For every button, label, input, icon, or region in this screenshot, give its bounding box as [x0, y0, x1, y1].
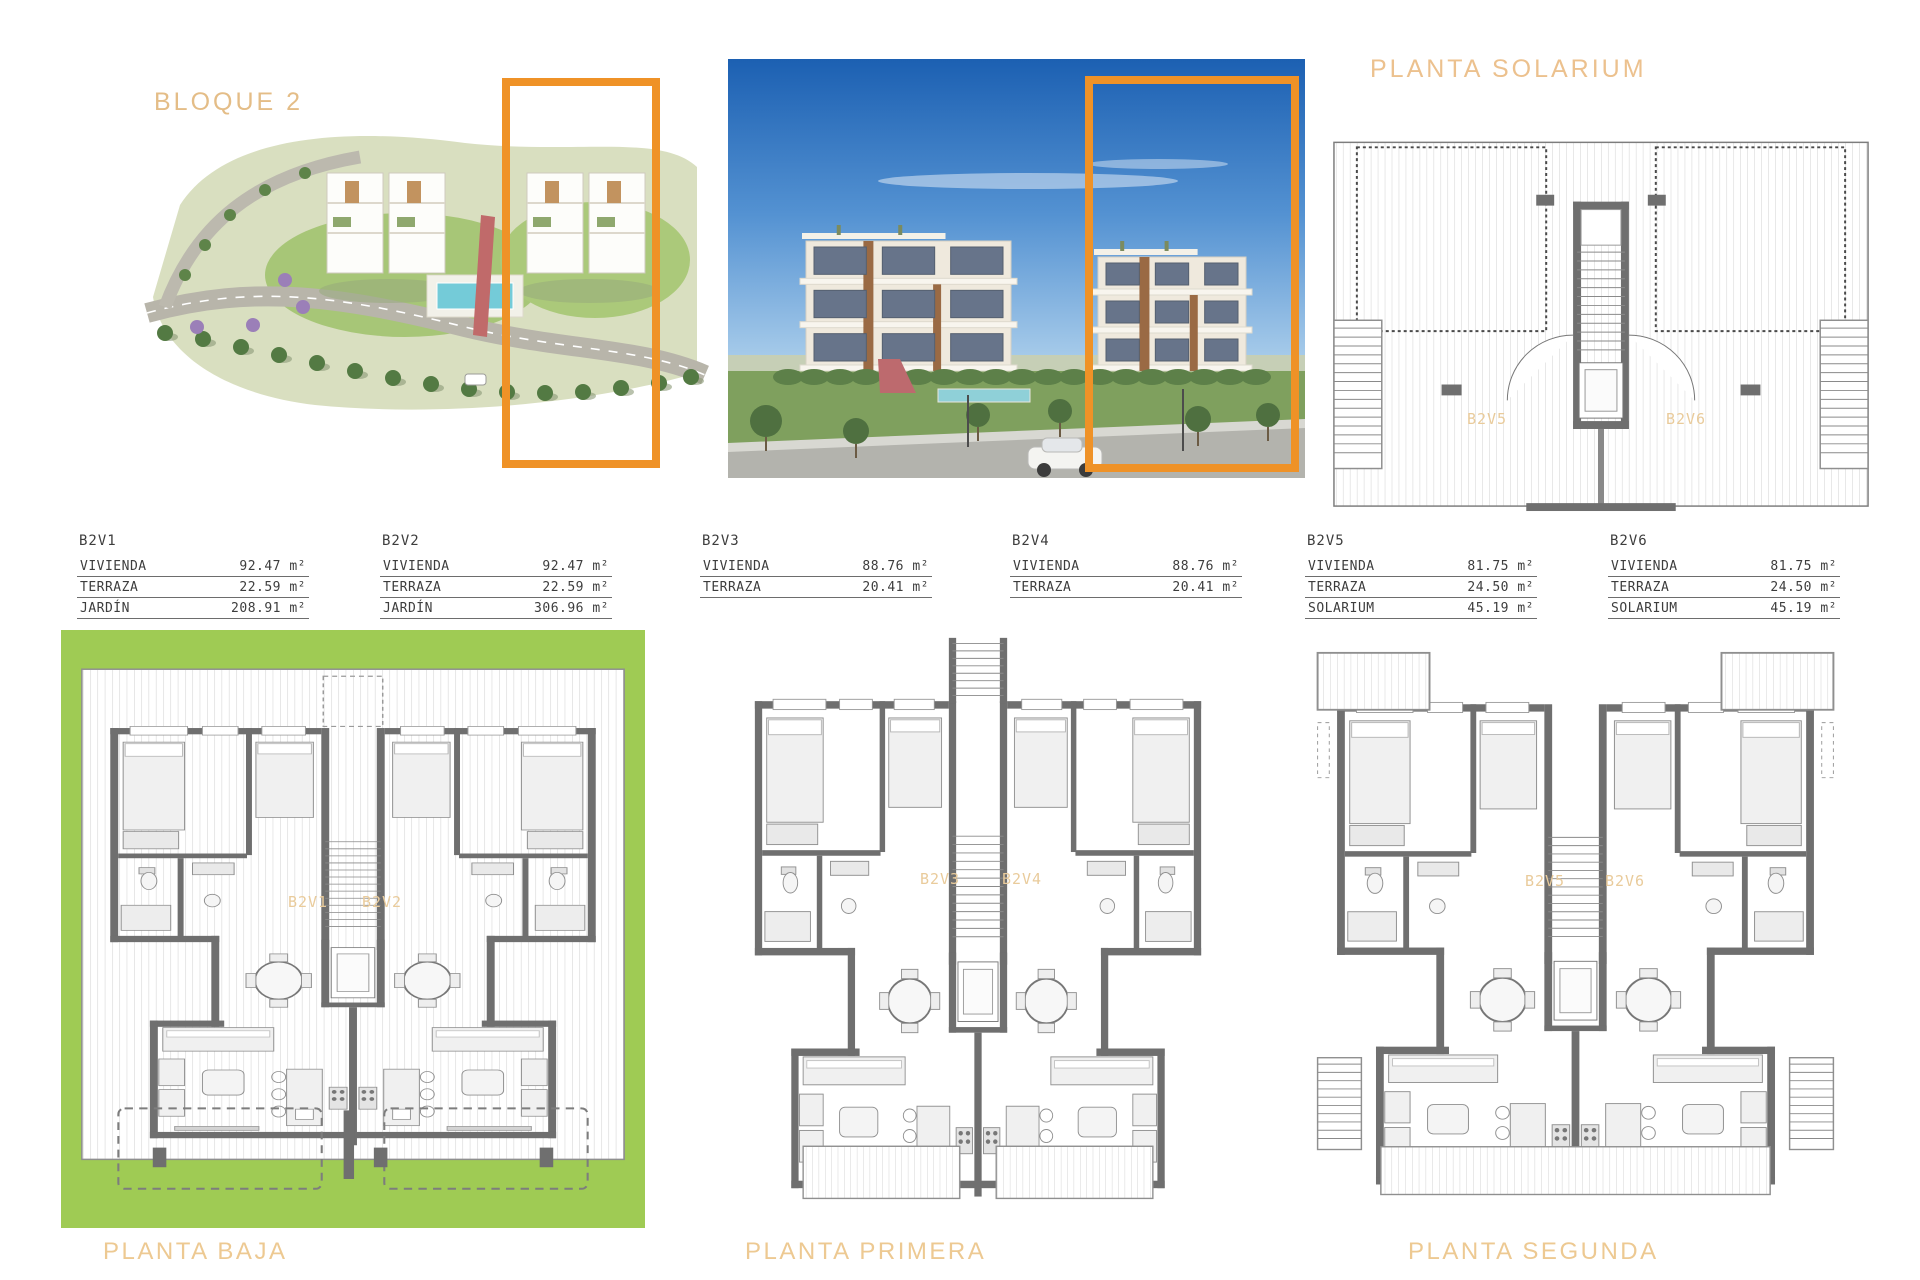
- planta-primera-plan: B2V3 B2V4: [723, 636, 1233, 1204]
- area-row-solarium: SOLARIUM45.19 m²: [1305, 598, 1537, 619]
- area-table-b2v1: B2V1VIVIENDA92.47 m²TERRAZA22.59 m²JARDÍ…: [77, 533, 309, 619]
- unit-label-b2v1: B2V1: [288, 893, 328, 911]
- area-table-b2v2: B2V2VIVIENDA92.47 m²TERRAZA22.59 m²JARDÍ…: [380, 533, 612, 619]
- area-table-b2v3: B2V3VIVIENDA88.76 m²TERRAZA20.41 m²: [700, 533, 932, 598]
- area-row-vivienda: VIVIENDA92.47 m²: [380, 556, 612, 577]
- area-row-solarium: SOLARIUM45.19 m²: [1608, 598, 1840, 619]
- table-title: B2V4: [1012, 533, 1242, 549]
- building-highlight-box-aerial: [502, 78, 660, 468]
- area-row-vivienda: VIVIENDA88.76 m²: [700, 556, 932, 577]
- table-title: B2V3: [702, 533, 932, 549]
- area-row-jardín: JARDÍN306.96 m²: [380, 598, 612, 619]
- unit-label-b2v5: B2V5: [1525, 872, 1565, 890]
- area-table-b2v6: B2V6VIVIENDA81.75 m²TERRAZA24.50 m²SOLAR…: [1608, 533, 1840, 619]
- area-row-vivienda: VIVIENDA92.47 m²: [77, 556, 309, 577]
- brochure-page: BLOQUE 2 PLANTA SOLARIUM B2V5 B2V6 B2V1V…: [0, 0, 1920, 1280]
- building-highlight-box-photo: [1085, 76, 1299, 472]
- planta-baja-caption: PLANTA BAJA: [103, 1238, 287, 1266]
- area-table-b2v4: B2V4VIVIENDA88.76 m²TERRAZA20.41 m²: [1010, 533, 1242, 598]
- area-table-b2v5: B2V5VIVIENDA81.75 m²TERRAZA24.50 m²SOLAR…: [1305, 533, 1537, 619]
- planta-baja-plan: B2V1 B2V2: [61, 630, 645, 1228]
- table-title: B2V1: [79, 533, 309, 549]
- area-row-vivienda: VIVIENDA88.76 m²: [1010, 556, 1242, 577]
- unit-label-b2v3: B2V3: [920, 870, 960, 888]
- planta-segunda-plan: B2V5 B2V6: [1303, 640, 1848, 1200]
- planta-segunda-caption: PLANTA SEGUNDA: [1408, 1238, 1659, 1266]
- unit-label-b2v6-solarium: B2V6: [1666, 410, 1706, 428]
- planta-solarium-title: PLANTA SOLARIUM: [1370, 55, 1647, 84]
- area-row-terraza: TERRAZA20.41 m²: [1010, 577, 1242, 598]
- planta-primera-caption: PLANTA PRIMERA: [745, 1238, 986, 1266]
- area-row-terraza: TERRAZA22.59 m²: [77, 577, 309, 598]
- area-row-vivienda: VIVIENDA81.75 m²: [1608, 556, 1840, 577]
- area-row-terraza: TERRAZA24.50 m²: [1305, 577, 1537, 598]
- area-row-jardín: JARDÍN208.91 m²: [77, 598, 309, 619]
- unit-label-b2v2: B2V2: [362, 893, 402, 911]
- area-row-vivienda: VIVIENDA81.75 m²: [1305, 556, 1537, 577]
- table-title: B2V6: [1610, 533, 1840, 549]
- unit-label-b2v4: B2V4: [1002, 870, 1042, 888]
- unit-label-b2v5-solarium: B2V5: [1467, 410, 1507, 428]
- unit-label-b2v6: B2V6: [1605, 872, 1645, 890]
- area-row-terraza: TERRAZA24.50 m²: [1608, 577, 1840, 598]
- area-row-terraza: TERRAZA22.59 m²: [380, 577, 612, 598]
- table-title: B2V2: [382, 533, 612, 549]
- planta-solarium-plan: B2V5 B2V6: [1322, 88, 1880, 513]
- area-row-terraza: TERRAZA20.41 m²: [700, 577, 932, 598]
- table-title: B2V5: [1307, 533, 1537, 549]
